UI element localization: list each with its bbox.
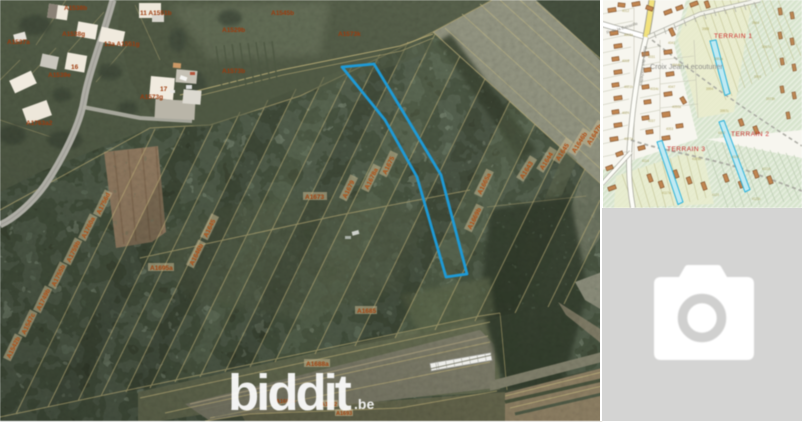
svg-text:11 A1551b: 11 A1551b [140,10,172,17]
svg-text:3973b: 3973b [766,97,775,101]
svg-text:A1537a: A1537a [7,39,30,46]
svg-text:4050a: 4050a [672,105,681,109]
svg-text:A1538g: A1538g [62,31,85,38]
svg-text:TERRAIN 3: TERRAIN 3 [667,146,705,153]
svg-text:A1538b: A1538b [64,5,87,12]
svg-text:A1573g: A1573g [140,94,163,101]
svg-text:4015a: 4015a [624,33,633,37]
svg-text:A1529b: A1529b [222,27,245,34]
svg-text:4120: 4120 [712,193,719,197]
svg-text:4102: 4102 [718,131,725,135]
svg-text:4037: 4037 [648,119,655,123]
svg-text:4021b: 4021b [624,85,633,89]
svg-text:4123c: 4123c [752,197,761,201]
svg-text:17: 17 [160,86,168,93]
svg-text:4024: 4024 [622,111,629,115]
svg-text:TERRAIN 1: TERRAIN 1 [714,33,752,40]
svg-text:4105a: 4105a [692,157,701,161]
svg-text:4034c: 4034c [650,87,659,91]
svg-text:3970: 3970 [754,75,761,79]
svg-text:3988: 3988 [702,27,709,31]
svg-text:4044b: 4044b [672,63,681,67]
svg-text:3991a: 3991a [714,57,723,61]
svg-text:A1539e: A1539e [48,72,71,79]
svg-text:A1685: A1685 [357,308,377,315]
svg-text:3964: 3964 [752,21,759,25]
svg-text:biddit: biddit [228,364,352,421]
svg-text:4027a: 4027a [624,137,633,141]
svg-text:3994: 3994 [706,87,713,91]
svg-text:Croix Jean-Lecouturier: Croix Jean-Lecouturier [650,62,723,71]
svg-text:4117a: 4117a [662,191,671,195]
svg-text:4047: 4047 [668,85,675,89]
svg-text:13a A1551g: 13a A1551g [104,41,140,48]
svg-text:16: 16 [71,64,79,71]
svg-text:A1573k: A1573k [338,31,361,38]
svg-text:4108: 4108 [732,155,739,159]
svg-text:3997c: 3997c [720,109,729,113]
svg-text:TERRAIN 2: TERRAIN 2 [731,131,769,138]
svg-text:A1545b: A1545b [271,10,294,17]
svg-text:4114: 4114 [642,159,649,163]
svg-text:4018: 4018 [622,59,629,63]
svg-text:4111b: 4111b [762,167,771,171]
svg-text:A1695a: A1695a [150,265,173,272]
svg-text:4053: 4053 [666,127,673,131]
svg-text:A1763a2: A1763a2 [26,120,53,127]
svg-text:A1573b: A1573b [222,68,245,75]
svg-text:.be: .be [354,396,374,412]
svg-text:A1673: A1673 [305,194,325,201]
svg-text:4041: 4041 [668,41,675,45]
svg-text:3967a: 3967a [762,45,771,49]
svg-text:4031: 4031 [648,55,655,59]
svg-text:4012: 4012 [622,9,629,13]
